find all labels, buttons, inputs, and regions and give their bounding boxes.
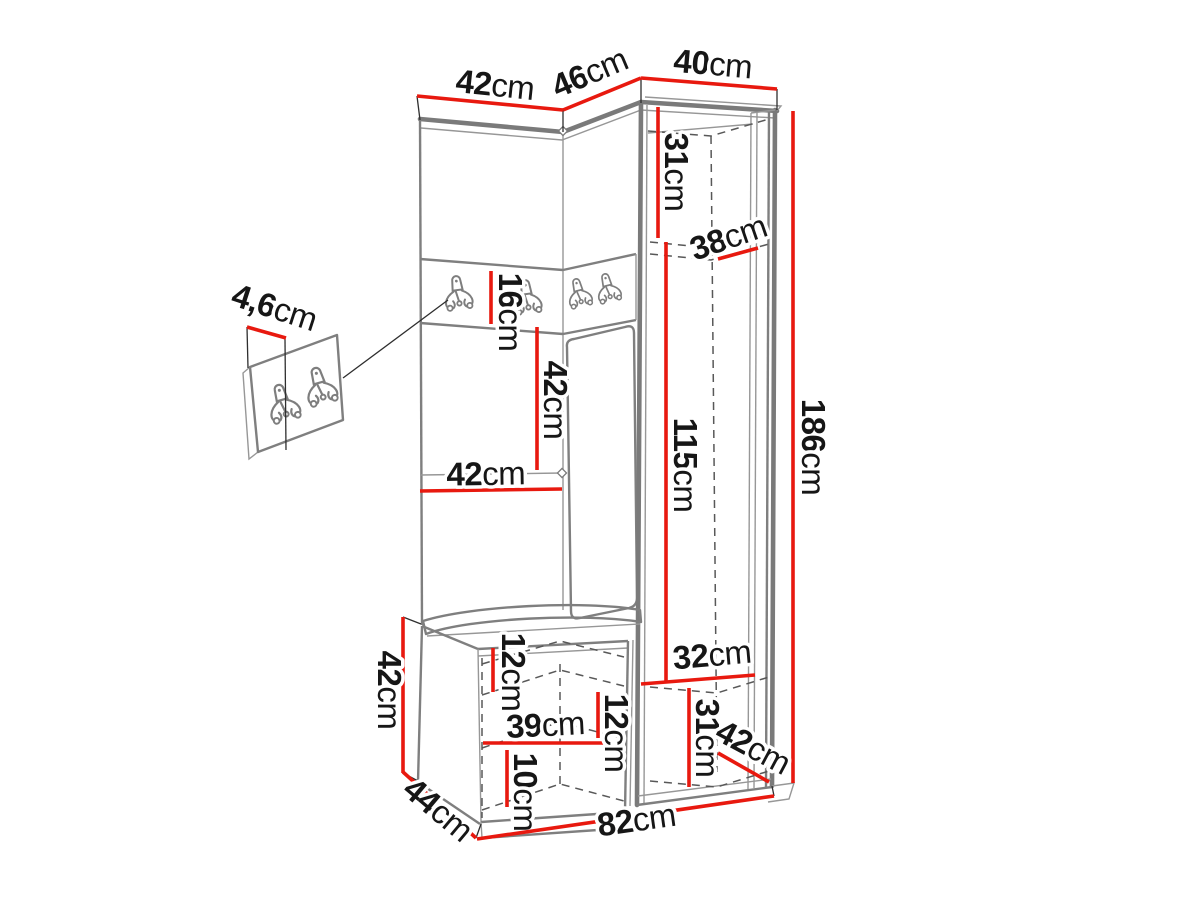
svg-text:42cm: 42cm [537,361,574,440]
svg-text:42cm: 42cm [446,454,525,492]
svg-text:186cm: 186cm [795,399,832,496]
svg-text:31cm: 31cm [658,133,695,212]
svg-text:16cm: 16cm [492,273,529,352]
dimension-bench-inner-middle: 12cm [598,692,635,772]
svg-text:39cm: 39cm [505,704,586,745]
svg-text:32cm: 32cm [671,633,753,677]
svg-text:12cm: 12cm [598,694,635,773]
dimension-bench-inner-bottom: 10cm [507,750,544,831]
svg-text:12cm: 12cm [495,633,532,712]
svg-text:115cm: 115cm [667,418,704,513]
diagram-canvas: 42cm 46cm 40cm 31cm 38cm 186cm 16cm [0,0,1200,899]
svg-text:40cm: 40cm [672,42,754,86]
wardrobe-right-edge [772,110,775,786]
dimension-hook-rail-height: 16cm [491,271,529,351]
svg-text:10cm: 10cm [507,753,544,832]
dimension-bench-inner-top: 12cm [493,633,532,712]
furniture-dimension-diagram: 42cm 46cm 40cm 31cm 38cm 186cm 16cm [0,0,1200,899]
svg-text:42cm: 42cm [371,651,408,730]
